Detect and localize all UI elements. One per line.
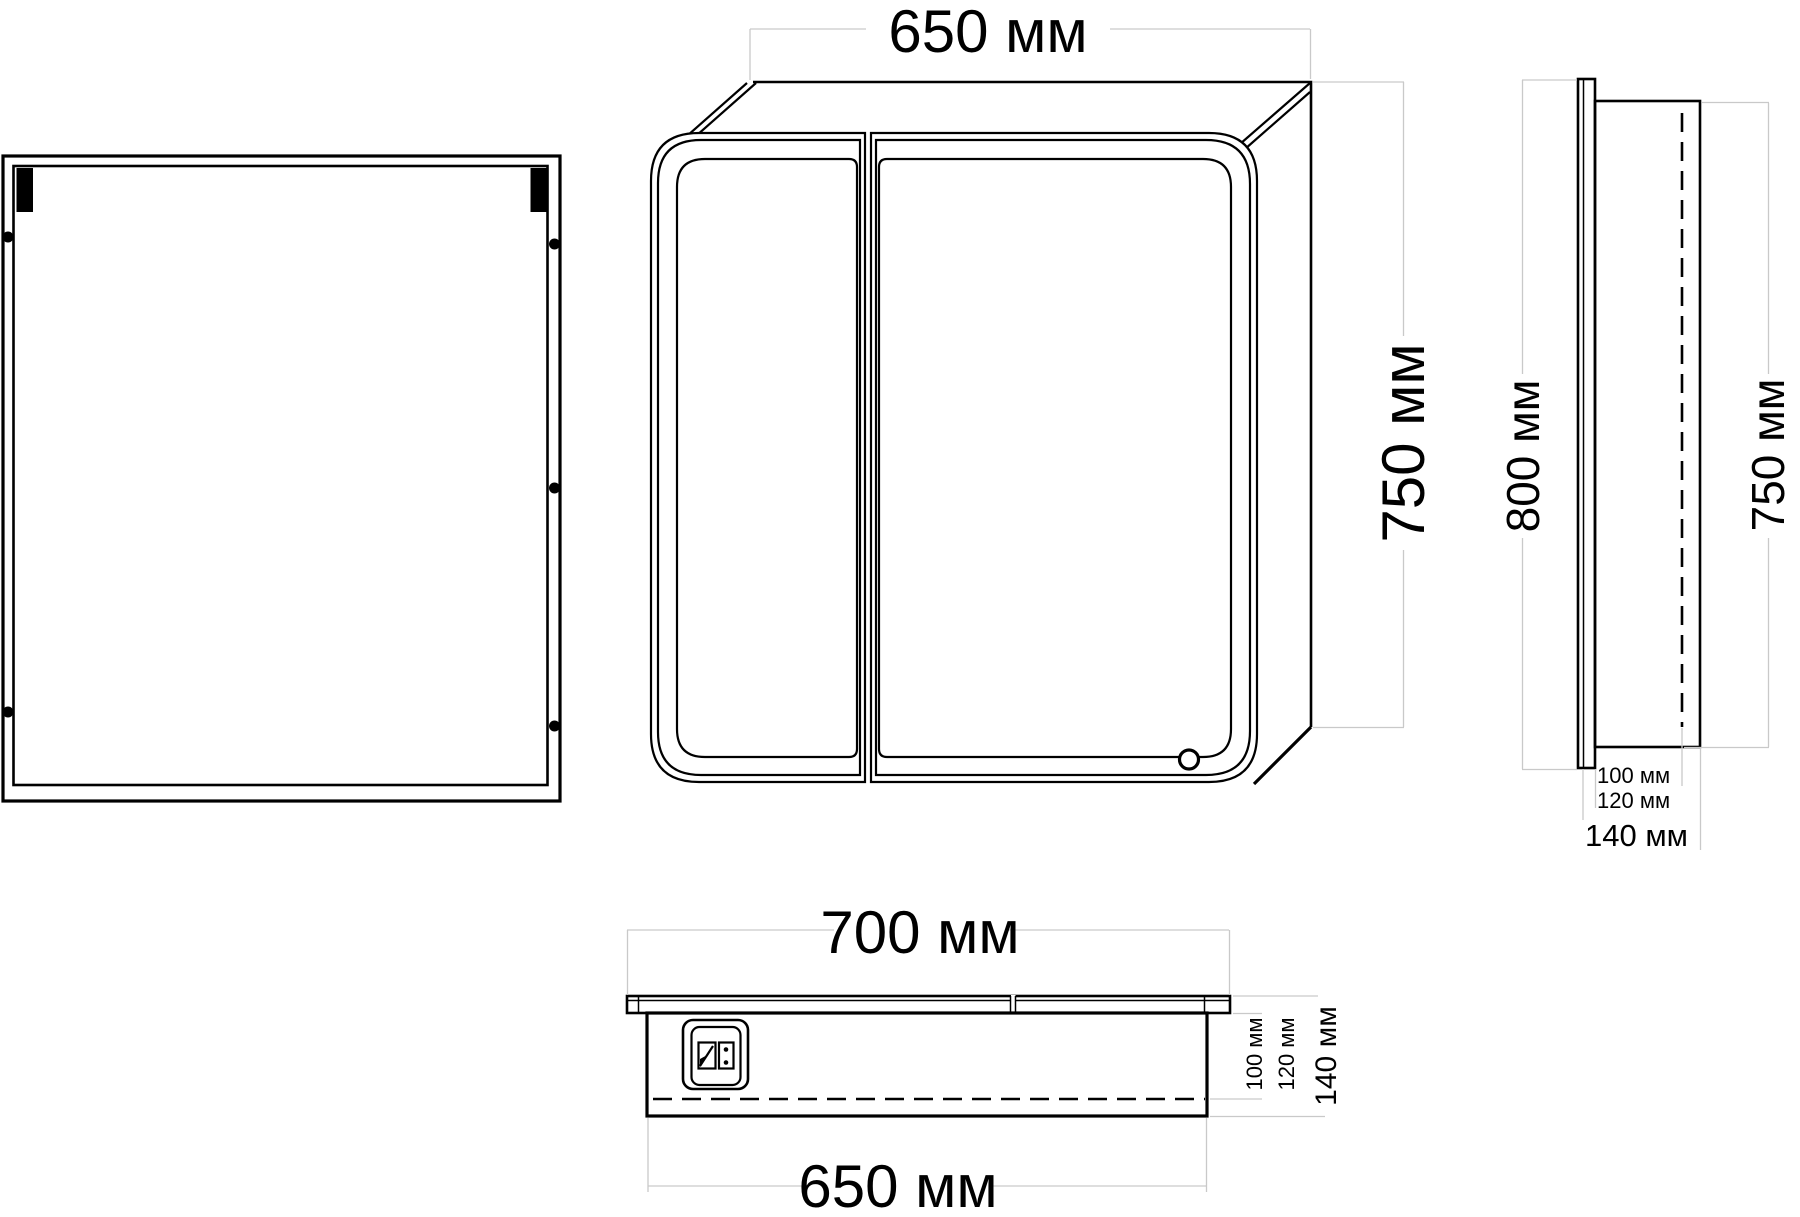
bottom-depth-total-label: 140 мм [1310,1006,1343,1106]
dim-side-overall-height: 800 мм [1497,80,1577,770]
side-depth-mid-label: 120 мм [1597,788,1670,813]
front-width-label: 650 мм [888,0,1087,65]
socket-switch-unit [683,1020,748,1089]
dim-bottom-box-width: 650 мм [648,1118,1207,1217]
dim-front-width: 650 мм [750,0,1311,80]
bottom-facade-slab [627,996,1230,1013]
side-depth-total-label: 140 мм [1585,818,1688,853]
mount-hole [3,232,14,243]
left-door [651,133,865,782]
side-overall-height-label: 800 мм [1497,380,1549,533]
bottom-view: 700 мм 650 мм 100 мм 120 мм 140 мм [627,899,1343,1217]
socket-hole [724,1060,729,1065]
mount-hole [549,721,560,732]
back-view [3,156,561,801]
mount-bracket-left [17,168,34,212]
back-view-inner-frame [14,166,548,785]
side-box-height-label: 750 мм [1742,379,1794,532]
dim-front-height: 750 мм [1313,82,1437,728]
bottom-depth-inner-label: 100 мм [1242,1017,1267,1090]
technical-drawing: 650 мм 750 мм 800 мм 75 [0,0,1800,1217]
bottom-box-width-label: 650 мм [798,1153,997,1217]
box-top-left-edge2 [696,83,756,136]
socket-hole [724,1047,729,1052]
mount-holes [3,232,561,732]
front-height-label: 750 мм [1370,343,1437,542]
mount-hole [549,483,560,494]
front-view: 650 мм 750 мм [651,0,1437,784]
mount-bracket-right [531,168,548,212]
box-top-right-edge2 [1245,92,1310,149]
dim-bottom-facade-width: 700 мм [627,899,1230,995]
mount-hole [549,239,560,250]
right-door [871,133,1257,782]
back-view-outer-frame [3,156,560,801]
touch-sensor [1180,750,1199,769]
box-bottom-right-edge [1254,727,1311,784]
mount-hole [3,707,14,718]
box-top-right-edge [1240,83,1310,144]
bottom-depth-mid-label: 120 мм [1274,1017,1299,1090]
side-view: 800 мм 750 мм 100 мм 120 мм 140 мм [1497,79,1794,853]
bottom-box [647,1013,1207,1116]
box-top-left-edge [687,83,747,136]
drawing-canvas: 650 мм 750 мм 800 мм 75 [0,0,1800,1217]
side-depth-inner-label: 100 мм [1597,763,1670,788]
right-door-outline [871,133,1257,782]
side-facade-slab [1578,79,1595,768]
side-box [1595,101,1700,747]
bottom-facade-width-label: 700 мм [820,899,1019,966]
left-door-outline [651,133,865,782]
